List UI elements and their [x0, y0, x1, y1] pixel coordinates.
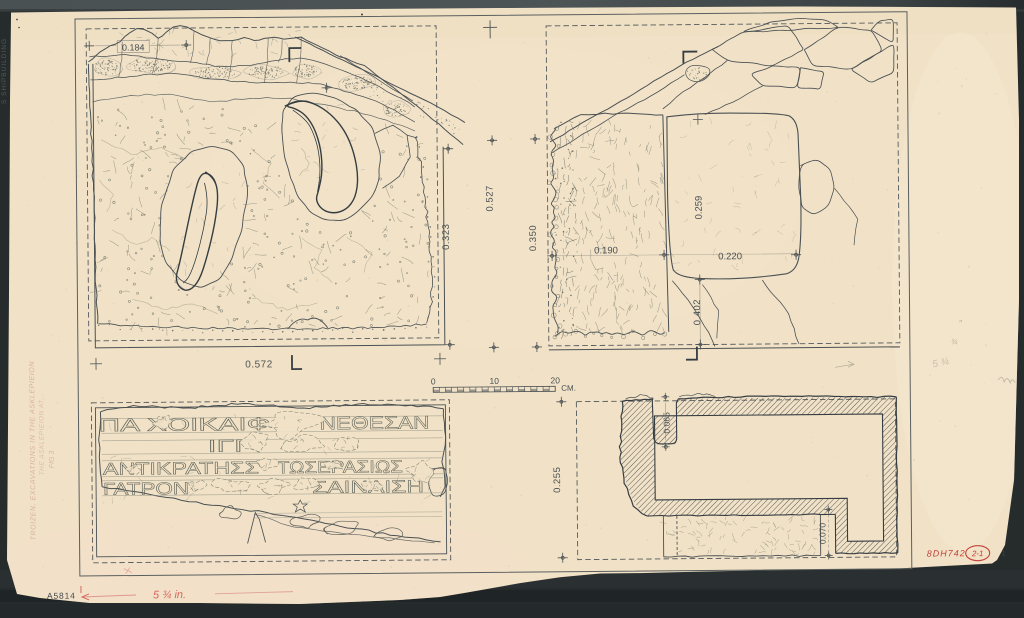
svg-text:S SHIPBUILDING: S SHIPBUILDING: [1, 38, 8, 104]
svg-text:5 ¾ in.: 5 ¾ in.: [153, 589, 186, 601]
svg-text:THE ASKLEPIEION AT...: THE ASKLEPIEION AT...: [38, 393, 46, 475]
svg-text:10: 10: [489, 376, 499, 386]
svg-text:0.323: 0.323: [441, 224, 452, 250]
svg-text:ΓΑΤΡΟΝ: ΓΑΤΡΟΝ: [103, 479, 189, 499]
svg-text:0.259: 0.259: [694, 196, 705, 220]
svg-text:0.255: 0.255: [552, 467, 563, 493]
svg-text:ΝΕΘΕΣΑΝ: ΝΕΘΕΣΑΝ: [319, 412, 429, 433]
svg-text:1: 1: [1002, 551, 1006, 558]
svg-text:20: 20: [550, 375, 560, 385]
svg-text:0: 0: [431, 376, 436, 386]
svg-text:0.065: 0.065: [661, 412, 671, 434]
svg-text:0.190: 0.190: [594, 245, 618, 256]
svg-text:¾: ¾: [951, 337, 958, 346]
svg-text:ΠΑ ΧΟΙΚΑΙΦ: ΠΑ ΧΟΙΚΑΙΦ: [98, 414, 270, 436]
svg-text:CM.: CM.: [561, 384, 576, 393]
svg-text:A5814: A5814: [47, 591, 76, 601]
svg-text:0.350: 0.350: [528, 225, 539, 251]
svg-text:0.402: 0.402: [692, 299, 703, 325]
svg-text:0.572: 0.572: [245, 359, 273, 370]
svg-text:8DH742: 8DH742: [927, 548, 966, 558]
svg-text:0.070: 0.070: [817, 523, 827, 545]
svg-text:0.527: 0.527: [484, 185, 495, 211]
svg-text:FIG 3: FIG 3: [49, 451, 56, 469]
svg-text:0.220: 0.220: [718, 251, 742, 262]
svg-text:0.184: 0.184: [122, 42, 145, 52]
svg-text:2-1: 2-1: [971, 549, 984, 558]
